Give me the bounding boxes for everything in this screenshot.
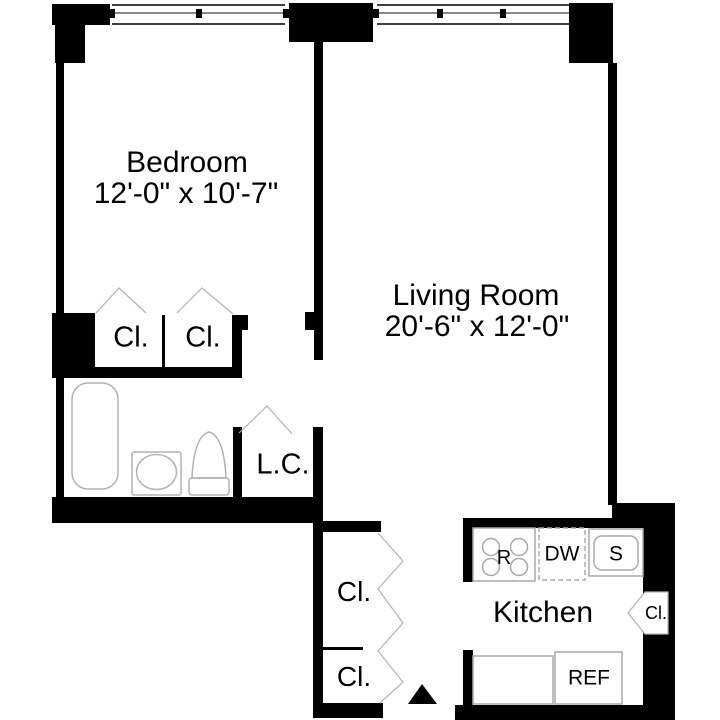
entry-arrow-icon	[408, 684, 437, 704]
bedroom-dimensions: 12'-0" x 10'-7"	[94, 179, 279, 209]
kitchen-label: Kitchen	[493, 598, 593, 628]
linen-closet-door	[239, 406, 292, 434]
bedroom-closet-right-label: Cl.	[185, 324, 220, 353]
range-label: R	[497, 548, 511, 568]
living-room-dimensions: 20'-6" x 12'-0"	[385, 312, 570, 342]
living-room-label: Living Room	[393, 281, 560, 311]
hall-closet-lower-label: Cl.	[337, 663, 371, 691]
bedroom-closet-door-left	[96, 288, 146, 313]
bedroom-closet-left-label: Cl.	[113, 324, 148, 353]
bedroom-label: Bedroom	[126, 148, 248, 178]
toilet-bowl	[192, 432, 226, 478]
linen-closet-label: L.C.	[256, 451, 309, 480]
floorplan-drawing	[0, 0, 720, 720]
sink-label: S	[609, 544, 623, 565]
bathroom-fixtures	[72, 383, 229, 495]
toilet-base	[189, 478, 229, 495]
vanity	[132, 452, 181, 495]
counter	[473, 656, 553, 704]
dishwasher-label: DW	[545, 544, 580, 565]
vanity-basin	[137, 455, 177, 490]
bedroom-closet-door-right	[177, 288, 233, 314]
kitchen-closet-label: Cl.	[645, 604, 667, 622]
hall-closet-doors	[378, 533, 403, 703]
refrigerator-label: REF	[568, 668, 610, 689]
bathtub	[72, 383, 118, 489]
hall-closet-upper-label: Cl.	[337, 578, 371, 606]
floorplan: Bedroom 12'-0" x 10'-7" Living Room 20'-…	[0, 0, 720, 720]
